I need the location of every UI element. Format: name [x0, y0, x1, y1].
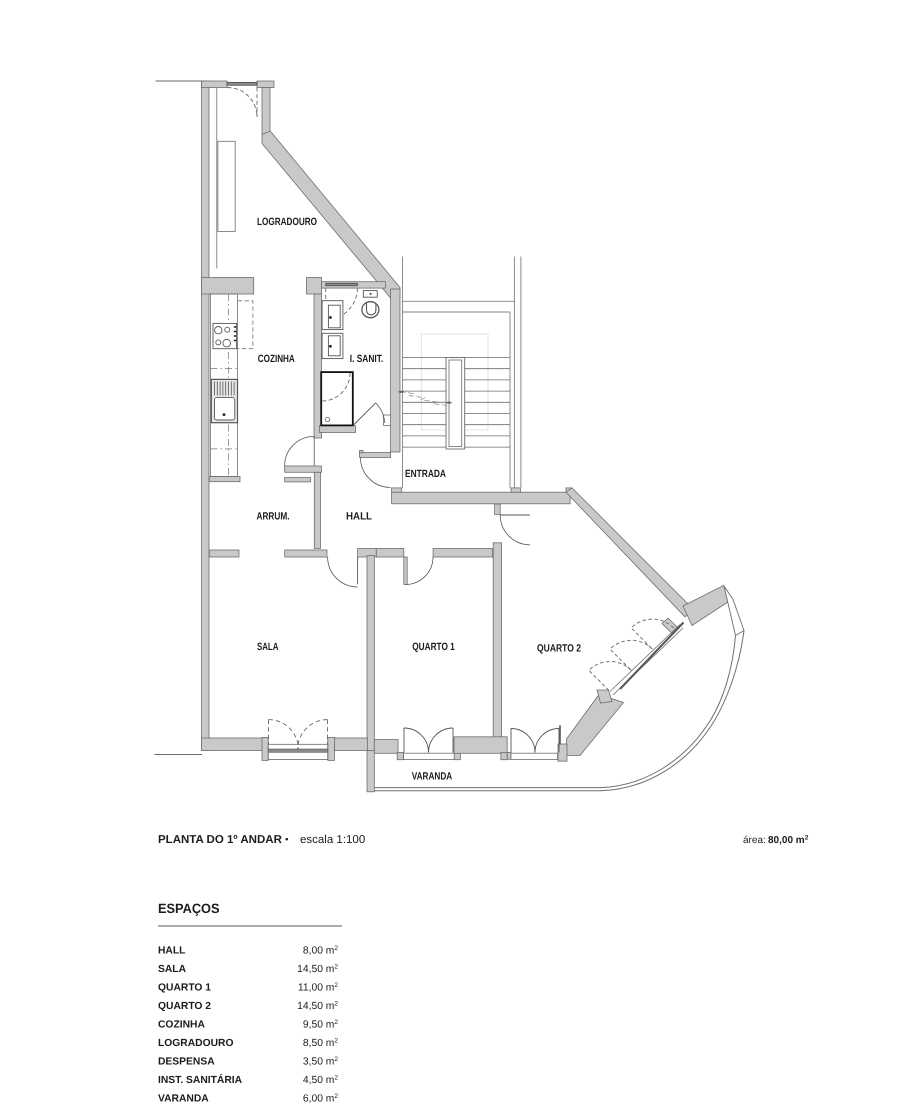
svg-text:14,50 m2: 14,50 m2	[297, 964, 338, 976]
svg-text:COZINHA: COZINHA	[258, 353, 295, 365]
svg-text:ENTRADA: ENTRADA	[405, 468, 446, 480]
svg-text:SALA: SALA	[158, 964, 187, 975]
svg-text:QUARTO 2: QUARTO 2	[158, 1001, 211, 1012]
svg-text:PLANTA DO 1º ANDAR: PLANTA DO 1º ANDAR	[158, 834, 283, 846]
svg-text:HALL: HALL	[158, 946, 185, 957]
svg-text:INST. SANITÁRIA: INST. SANITÁRIA	[158, 1073, 243, 1086]
svg-text:8,50 m2: 8,50 m2	[303, 1038, 338, 1050]
svg-text:80,00 m2: 80,00 m2	[768, 835, 809, 847]
svg-text:QUARTO 1: QUARTO 1	[412, 641, 455, 653]
svg-text:11,00 m2: 11,00 m2	[298, 982, 338, 994]
svg-text:QUARTO 2: QUARTO 2	[537, 643, 581, 655]
svg-text:LOGRADOURO: LOGRADOURO	[257, 216, 317, 228]
svg-text:DESPENSA: DESPENSA	[158, 1057, 215, 1068]
svg-text:ESPAÇOS: ESPAÇOS	[158, 901, 220, 916]
svg-text:VARANDA: VARANDA	[412, 770, 453, 782]
svg-text:•: •	[285, 835, 289, 846]
svg-text:escala 1:100: escala 1:100	[300, 834, 365, 846]
svg-text:4,50 m2: 4,50 m2	[303, 1075, 338, 1087]
svg-text:ARRUM.: ARRUM.	[257, 511, 290, 523]
svg-text:COZINHA: COZINHA	[158, 1020, 205, 1031]
svg-text:6,00 m2: 6,00 m2	[303, 1093, 338, 1105]
svg-text:área:: área:	[743, 835, 766, 846]
svg-text:3,50 m2: 3,50 m2	[303, 1056, 338, 1068]
svg-text:I. SANIT.: I. SANIT.	[350, 353, 384, 365]
svg-text:9,50 m2: 9,50 m2	[303, 1019, 338, 1031]
svg-text:HALL: HALL	[346, 511, 373, 523]
svg-text:SALA: SALA	[257, 641, 279, 653]
svg-text:14,50 m2: 14,50 m2	[297, 1001, 338, 1013]
svg-text:QUARTO 1: QUARTO 1	[158, 983, 211, 994]
svg-text:VARANDA: VARANDA	[158, 1094, 209, 1105]
svg-text:LOGRADOURO: LOGRADOURO	[158, 1038, 234, 1049]
svg-text:8,00 m2: 8,00 m2	[303, 945, 338, 957]
